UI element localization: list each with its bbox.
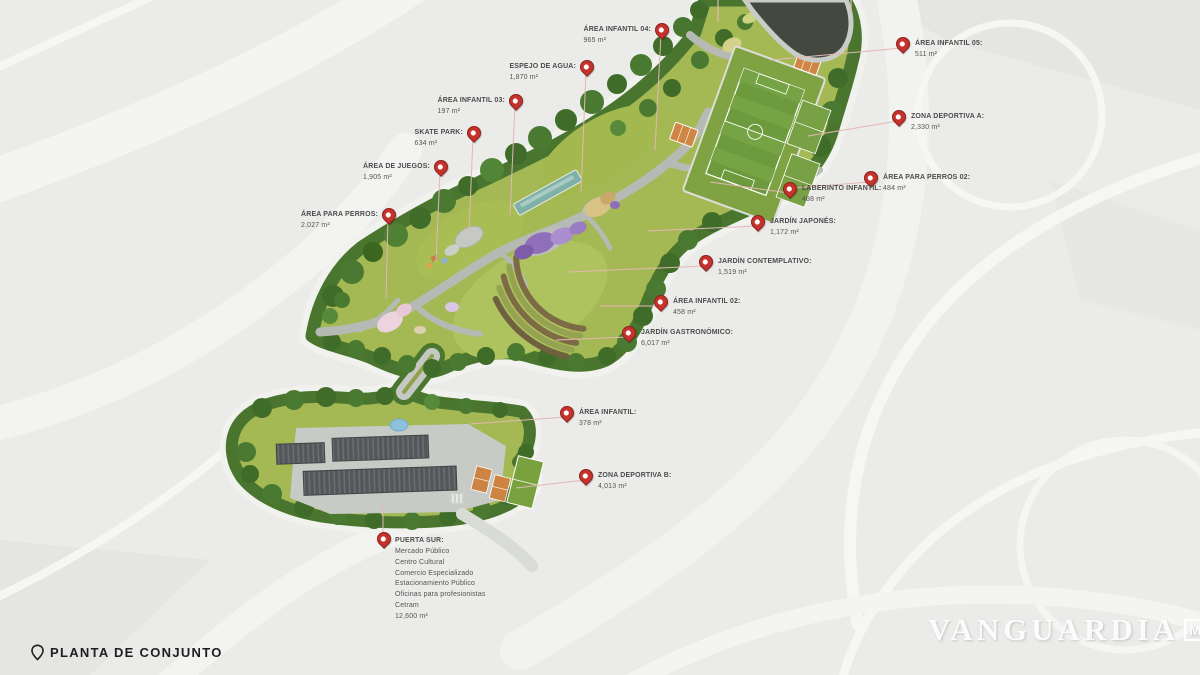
map-pin-icon <box>619 323 639 343</box>
map-pin-icon <box>431 157 451 177</box>
map-pin-icon <box>696 252 716 272</box>
map-pin-label: ÁREA DE JUEGOS: 1,905 m² <box>363 162 430 184</box>
map-pin-icon <box>464 123 484 143</box>
map-pin-label: JARDÍN JAPONÉS: 1,172 m² <box>770 217 836 239</box>
map-pin-label: ÁREA INFANTIL 05: 511 m² <box>915 39 983 61</box>
map-pin-label: PUERTA SUR: Mercado PúblicoCentro Cultur… <box>395 536 486 623</box>
plan-title: PLANTA DE CONJUNTO <box>30 644 223 661</box>
watermark: VANGUARDIA MX <box>928 612 1200 648</box>
map-pin-icon <box>889 107 909 127</box>
map-pin-label: ÁREA INFANTIL 03: 197 m² <box>437 96 505 118</box>
map-pin-icon <box>576 466 596 486</box>
watermark-text: VANGUARDIA <box>928 612 1179 648</box>
map-pin-label: SKATE PARK: 634 m² <box>415 128 463 150</box>
map-pin-icon <box>374 529 394 549</box>
map-pin-label: ZONA DEPORTIVA A: 2,330 m² <box>911 112 984 134</box>
map-pin-label: JARDÍN GASTRONÓMICO: 6,017 m² <box>641 328 733 350</box>
map-pin-icon <box>893 34 913 54</box>
map-pin-label: ÁREA PARA PERROS: 2,027 m² <box>301 210 378 232</box>
map-pin-icon <box>557 403 577 423</box>
map-pin-label: ZONA DEPORTIVA B: 4,013 m² <box>598 471 671 493</box>
plan-title-label: PLANTA DE CONJUNTO <box>50 645 223 660</box>
map-pin-icon <box>379 205 399 225</box>
map-pin-label: ESPEJO DE AGUA: 1,870 m² <box>509 62 576 84</box>
map-pin-label: JARDÍN CONTEMPLATIVO: 1,519 m² <box>718 257 812 279</box>
map-pin-label: LABERINTO INFANTIL: 488 m² <box>802 184 881 206</box>
site-plan-page: ÁREA INFANTIL 04: 965 m² ESPEJO DE AGUA:… <box>0 0 1200 675</box>
pin-outline-icon <box>30 644 45 661</box>
map-pin-icon <box>577 57 597 77</box>
map-pin-label: ÁREA INFANTIL 04: 965 m² <box>583 25 651 47</box>
map-pin-label: ÁREA PARA PERROS 02: 484 m² <box>883 173 970 195</box>
map-pin-icon <box>780 179 800 199</box>
watermark-mx-logo: MX <box>1184 619 1200 641</box>
map-pin-label: ÁREA INFANTIL: 378 m² <box>579 408 636 430</box>
map-pin-icon <box>652 20 672 40</box>
map-pin-icon <box>506 91 526 111</box>
map-pin-icon <box>651 292 671 312</box>
map-pin-icon <box>748 212 768 232</box>
pin-layer: ÁREA INFANTIL 04: 965 m² ESPEJO DE AGUA:… <box>0 0 1200 675</box>
map-pin-label: ÁREA INFANTIL 02: 458 m² <box>673 297 741 319</box>
